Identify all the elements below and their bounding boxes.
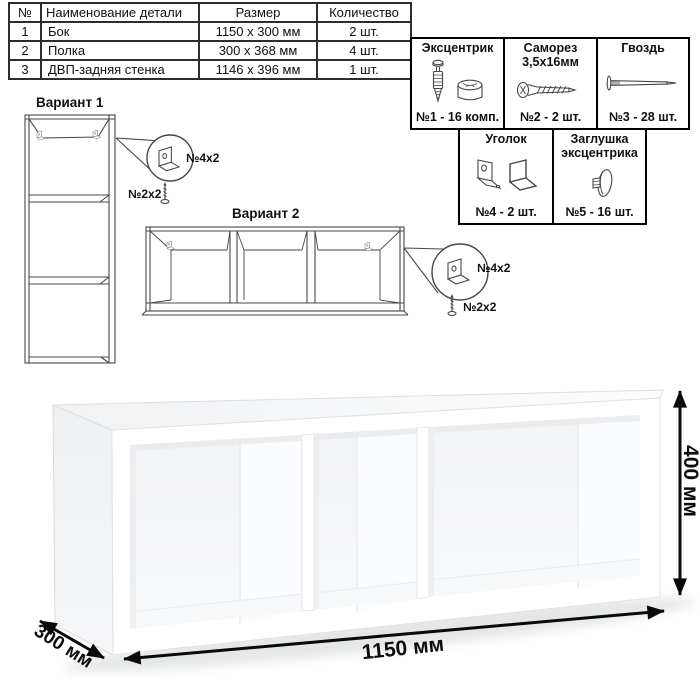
part-name-cell: ДВП-задняя стенка xyxy=(41,60,199,79)
hardware-title-line2: 3,5х16мм xyxy=(522,55,579,69)
variant2-bracket-callout-label: №4х2 xyxy=(477,261,510,275)
col-header-quantity: Количество xyxy=(317,3,411,22)
screw-icon xyxy=(509,74,593,106)
hardware-count: №3 - 28 шт. xyxy=(609,110,677,124)
hardware-title: Гвоздь xyxy=(621,41,665,55)
table-row: 3 ДВП-задняя стенка 1146 x 396 мм 1 шт. xyxy=(9,60,411,79)
col-header-number: № xyxy=(9,3,41,22)
part-size-cell: 1146 x 396 мм xyxy=(199,60,317,79)
corner-bracket-icon xyxy=(464,153,548,199)
screw-icon xyxy=(161,182,169,204)
part-name-cell: Бок xyxy=(41,22,199,41)
part-quantity-cell: 2 шт. xyxy=(317,22,411,41)
part-number-cell: 2 xyxy=(9,41,41,60)
variant1-screw-callout-label: №2х2 xyxy=(128,187,161,201)
assembly-instruction-sheet: № Наименование детали Размер Количество … xyxy=(0,0,700,690)
parts-table: № Наименование детали Размер Количество … xyxy=(8,2,412,80)
table-row: 1 Бок 1150 x 300 мм 2 шт. xyxy=(9,22,411,41)
hardware-cell-cap: Заглушка эксцентрика №5 - 16 шт. xyxy=(552,128,647,225)
variant1-bracket-callout-label: №4х2 xyxy=(186,151,219,165)
part-name-cell: Полка xyxy=(41,41,199,60)
col-header-name: Наименование детали xyxy=(41,3,199,22)
hardware-title: Саморез xyxy=(524,41,578,55)
variant2-diagram xyxy=(140,203,520,335)
cam-cap-icon xyxy=(558,166,642,200)
table-row: 2 Полка 300 x 368 мм 4 шт. xyxy=(9,41,411,60)
part-number-cell: 3 xyxy=(9,60,41,79)
hardware-title: Эксцентрик xyxy=(422,41,494,55)
cam-bolt-and-lock-icon xyxy=(416,58,500,108)
hardware-count: №5 - 16 шт. xyxy=(565,205,633,219)
part-size-cell: 300 x 368 мм xyxy=(199,41,317,60)
hardware-cell-nail: Гвоздь №3 - 28 шт. xyxy=(596,37,690,130)
part-size-cell: 1150 x 300 мм xyxy=(199,22,317,41)
hardware-cell-screw: Саморез 3,5х16мм №2 - 2 шт. xyxy=(503,37,598,130)
parts-table-header-row: № Наименование детали Размер Количество xyxy=(9,3,411,22)
hardware-title: Заглушка xyxy=(570,132,628,146)
part-quantity-cell: 1 шт. xyxy=(317,60,411,79)
hardware-title-line2: эксцентрика xyxy=(561,146,638,160)
hardware-cell-cam: Эксцентрик №1 - 16 комп. xyxy=(410,37,505,130)
part-number-cell: 1 xyxy=(9,22,41,41)
nail-icon xyxy=(601,63,685,103)
hardware-count: №2 - 2 шт. xyxy=(520,110,581,124)
height-dimension-label: 400 мм xyxy=(678,436,700,526)
variant2-screw-callout-label: №2х2 xyxy=(463,300,496,314)
hardware-count: №1 - 16 комп. xyxy=(416,110,499,124)
hardware-title: Уголок xyxy=(485,132,526,146)
part-quantity-cell: 4 шт. xyxy=(317,41,411,60)
col-header-size: Размер xyxy=(199,3,317,22)
